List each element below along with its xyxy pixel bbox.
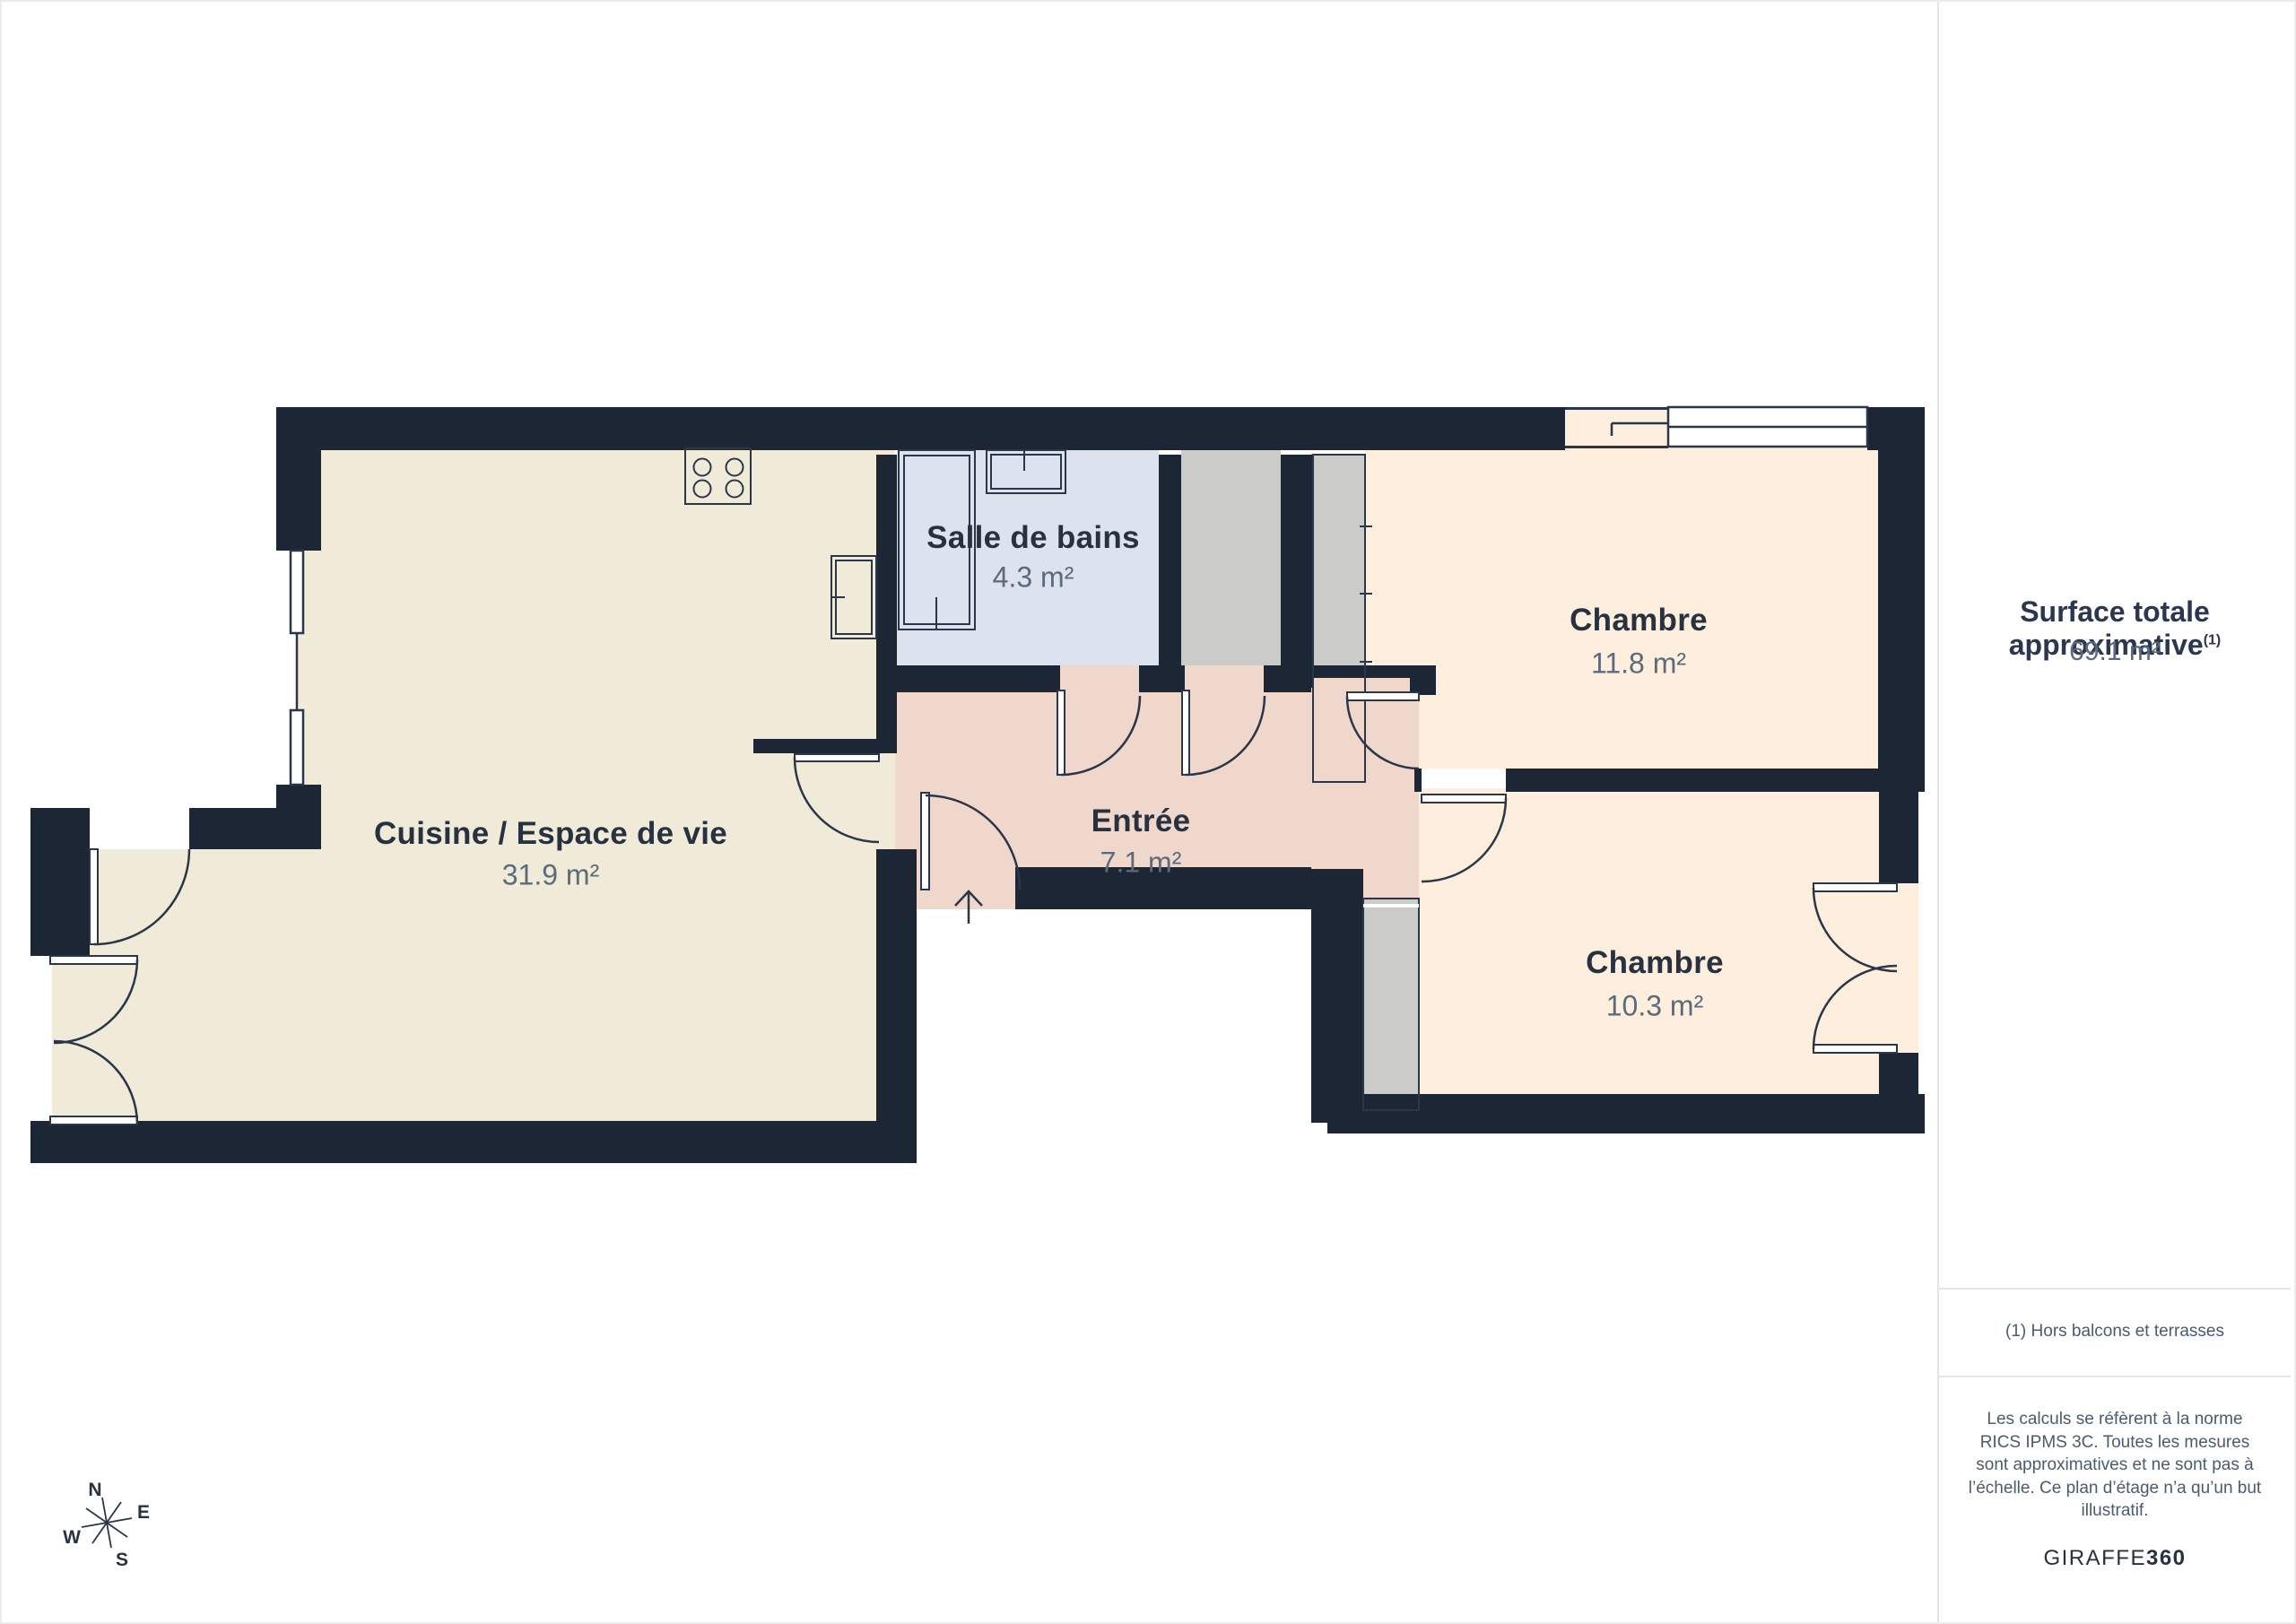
wall xyxy=(876,849,917,1163)
wall xyxy=(1506,769,1925,792)
brand-name: GIRAFFE xyxy=(2043,1546,2146,1570)
room-fill-closet xyxy=(1181,450,1281,688)
wall xyxy=(1264,665,1311,692)
wall xyxy=(276,785,321,849)
room-fill-duct-bottom xyxy=(1363,899,1419,1110)
footnote-text: (1) Hors balcons et terrasses xyxy=(1939,1322,2291,1342)
room-label-chambre-2: Chambre xyxy=(1586,945,1724,981)
room-label-entree: Entrée xyxy=(1091,803,1191,839)
brand-logo: GIRAFFE360 xyxy=(1939,1546,2291,1571)
divider xyxy=(1939,1288,2291,1290)
compass-w: W xyxy=(63,1527,81,1548)
room-area-entree: 7.1 m² xyxy=(1100,847,1182,880)
brand-suffix: 360 xyxy=(2146,1546,2187,1570)
compass-labels: N E S W xyxy=(63,1480,150,1570)
total-area-value: 69.1 m² xyxy=(1939,637,2291,667)
room-area-chambre-1: 11.8 m² xyxy=(1591,647,1686,681)
compass-s: S xyxy=(116,1550,128,1570)
wall xyxy=(1879,788,1918,883)
room-fill-chambre-2 xyxy=(1419,788,1918,1094)
wall xyxy=(189,808,279,849)
wall xyxy=(1327,1094,1925,1133)
room-area-chambre-2: 10.3 m² xyxy=(1606,990,1703,1023)
room-fill-balcony-recess xyxy=(1565,407,1668,448)
room-fill-cuisine xyxy=(297,450,895,1142)
summary-sidebar: Surface totale approximative(1) 69.1 m² … xyxy=(1937,2,2291,1624)
wall xyxy=(1139,665,1185,692)
wall xyxy=(1878,447,1925,769)
divider xyxy=(1939,1376,2291,1377)
wall xyxy=(276,407,321,551)
room-area-salle-de-bains: 4.3 m² xyxy=(993,561,1074,595)
wall xyxy=(1867,407,1925,450)
compass-n: N xyxy=(88,1480,101,1500)
wall xyxy=(876,455,897,753)
room-label-cuisine: Cuisine / Espace de vie xyxy=(374,816,727,852)
wall xyxy=(1311,869,1363,1123)
wall xyxy=(280,407,1565,450)
wall xyxy=(1414,769,1422,792)
compass-e: E xyxy=(137,1502,150,1523)
floorplan-page: N E S W Cuisine / Espace de vie 31.9 m² … xyxy=(0,0,2296,1624)
room-area-cuisine: 31.9 m² xyxy=(502,859,599,892)
wall xyxy=(1879,1053,1918,1094)
wall xyxy=(30,1121,917,1163)
wall xyxy=(1281,455,1313,688)
disclaimer-text: Les calculs se réfèrent à la norme RICS … xyxy=(1967,1408,2263,1523)
room-label-salle-de-bains: Salle de bains xyxy=(926,520,1140,556)
compass-icon xyxy=(82,1498,132,1548)
wall xyxy=(1159,455,1181,688)
room-label-chambre-1: Chambre xyxy=(1570,603,1708,638)
wall xyxy=(1410,665,1436,695)
wall xyxy=(753,739,879,753)
wall xyxy=(895,665,1060,692)
wall xyxy=(30,808,90,956)
